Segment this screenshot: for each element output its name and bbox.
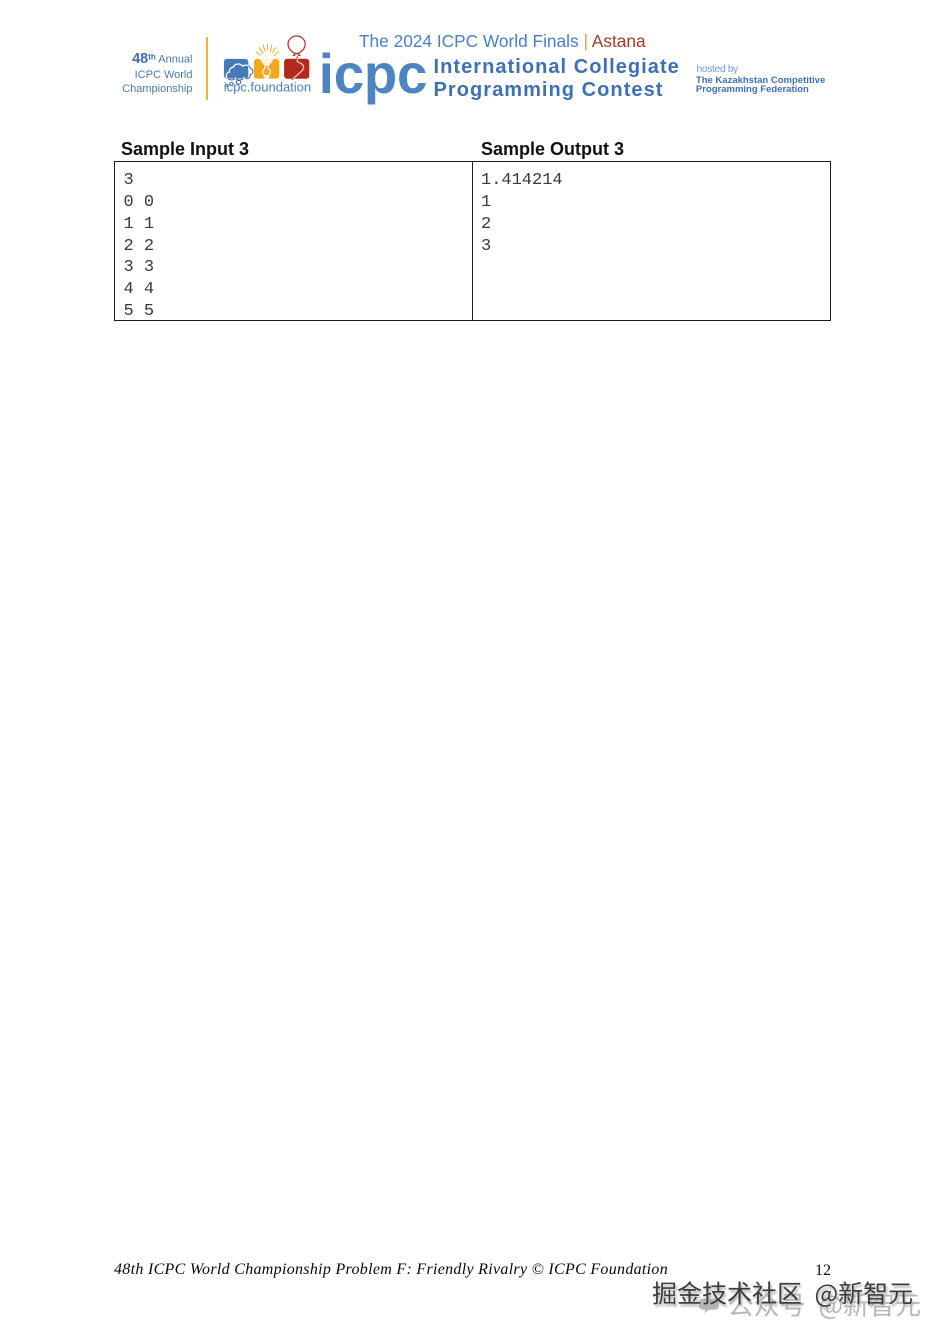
svg-text:icpc.foundation: icpc.foundation xyxy=(224,80,311,95)
